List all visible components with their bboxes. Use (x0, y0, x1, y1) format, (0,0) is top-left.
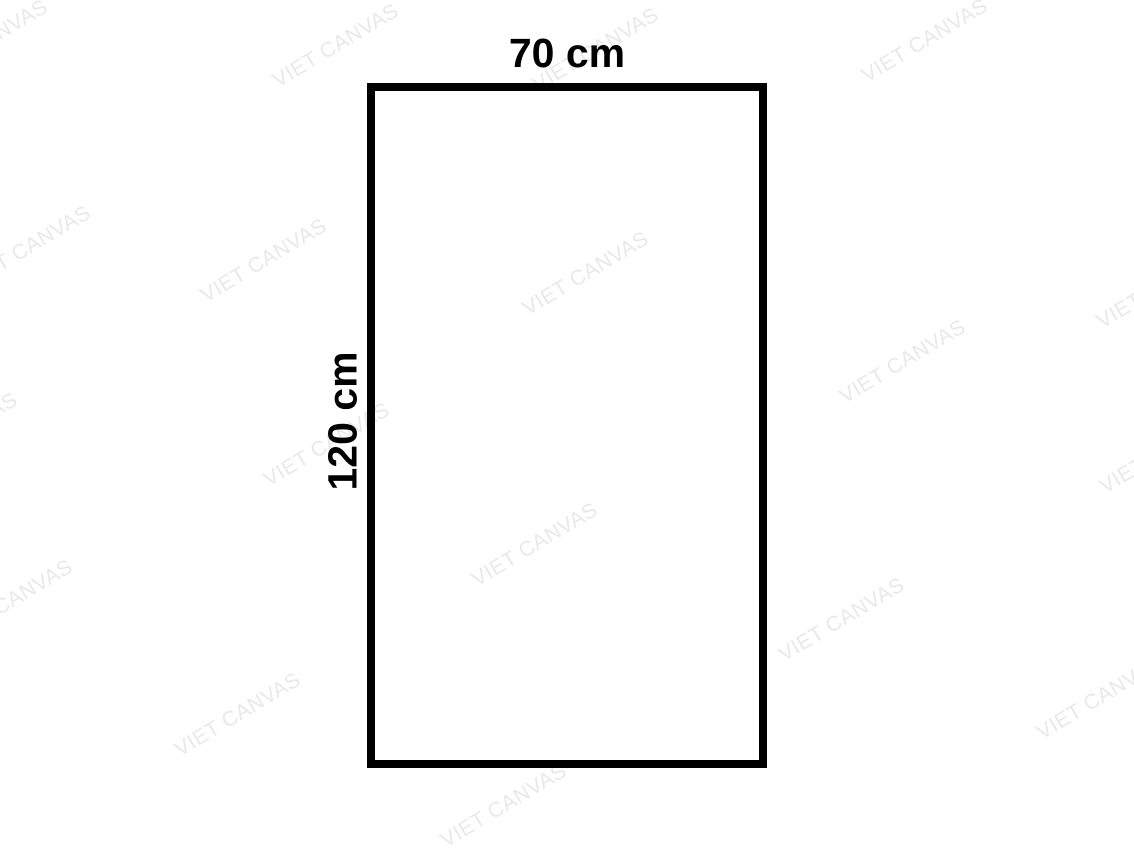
watermark-text: VIET CANVAS (1093, 240, 1134, 334)
width-dimension-label: 70 cm (367, 33, 767, 74)
watermark-text: VIET CANVAS (197, 214, 331, 308)
watermark-text: VIET CANVAS (437, 759, 571, 850)
watermark-text: VIET CANVAS (1096, 405, 1134, 499)
watermark-text: VIET CANVAS (0, 555, 77, 649)
canvas-outline-rectangle (367, 83, 767, 768)
watermark-text: VIET CANVAS (171, 668, 305, 762)
watermark-text: VIET CANVAS (775, 573, 909, 667)
watermark-text: VIET CANVAS (858, 0, 992, 88)
watermark-text: VIET CANVAS (836, 315, 970, 409)
watermark-text: VIET CANVAS (0, 201, 95, 295)
watermark-text: VIET CANVAS (1033, 651, 1134, 745)
canvas-size-diagram: VIET CANVASVIET CANVASVIET CANVASVIET CA… (0, 0, 1134, 850)
height-dimension-label: 120 cm (323, 351, 364, 490)
watermark-text: VIET CANVAS (0, 388, 22, 482)
watermark-text: VIET CANVAS (0, 0, 52, 89)
